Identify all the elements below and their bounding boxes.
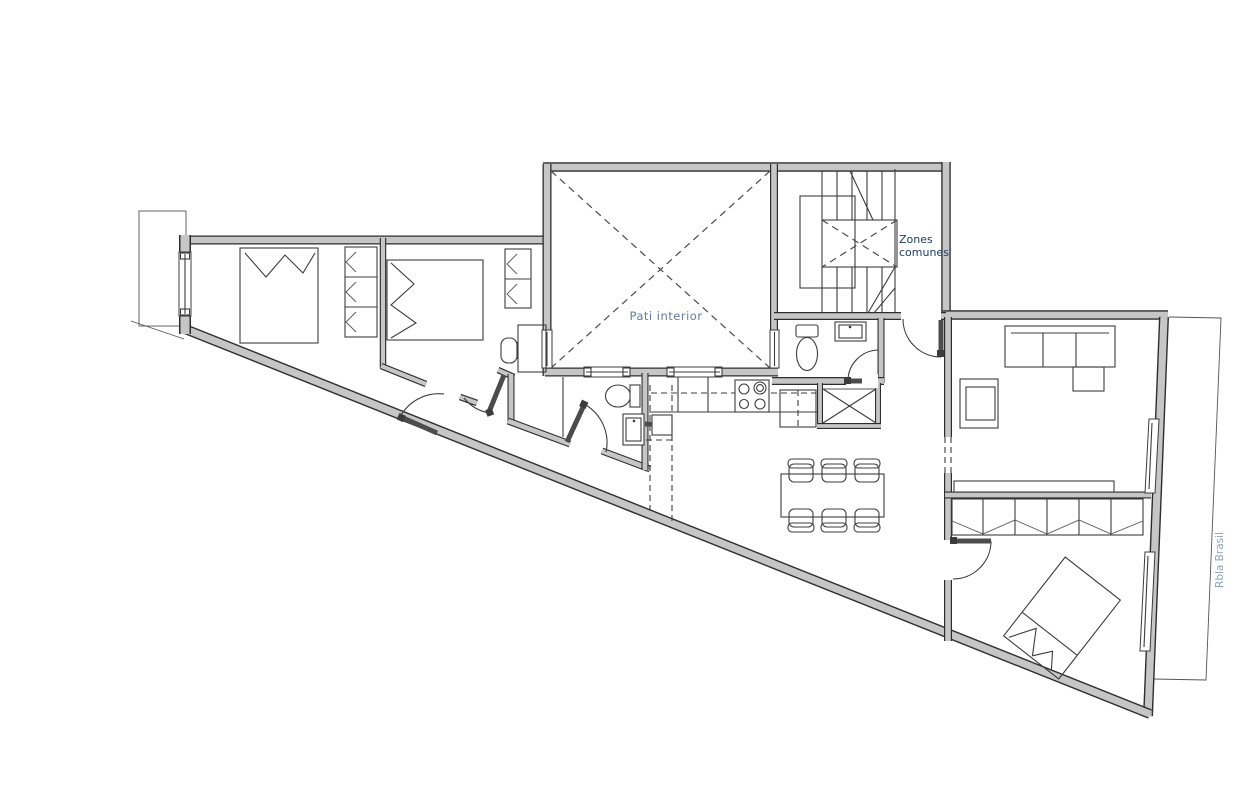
wall-openings [846,309,954,580]
wardrobe [952,499,1143,535]
floor-plan-drawing: Pati interior Zones comunes [0,0,1243,788]
bed-pillows [245,253,315,277]
door-bedroom-2 [464,375,504,417]
window [584,367,630,377]
bedroom-3 [952,499,1143,679]
street-label: Rbla Brasil [1214,532,1226,588]
sink [623,414,644,445]
door-bedroom-3 [950,537,991,579]
common-zones-label-line1: Zones [899,233,933,246]
window [770,330,779,368]
ground-line [131,321,184,339]
toilet [796,325,818,371]
window [542,330,552,368]
dining-chair [821,459,847,482]
shelf [954,481,1114,492]
tv-unit [960,379,998,428]
entrance-door [903,319,944,357]
patio-label: Pati interior [629,309,702,323]
dining-table [781,474,884,517]
kitchen [645,377,817,521]
window [179,252,191,316]
desk-chair [501,338,517,363]
patio: Pati interior [551,171,770,368]
toilet [606,385,641,407]
bedroom-2 [387,249,546,372]
staircase: Zones comunes [800,169,949,313]
dining-chair [854,509,880,532]
walls [181,162,1168,716]
bathroom-1 [796,322,866,371]
closet [345,247,377,337]
living-room [954,326,1115,492]
dining-chair [788,509,814,532]
dining-chair [788,459,814,482]
stove [735,380,769,412]
sofa [1005,326,1115,391]
closet [505,249,531,308]
bathroom-2 [563,377,644,445]
vent-shaft [823,389,876,423]
dining-area [781,459,884,532]
bedroom-1 [240,247,377,343]
floor-plan-page: Pati interior Zones comunes [0,0,1243,788]
door-bathroom-2 [567,400,607,452]
window [667,367,722,377]
common-zones-label-line2: comunes [899,246,949,259]
dining-chair [821,509,847,532]
laundry [780,390,816,427]
dining-chair [854,459,880,482]
site-outline [131,211,1221,680]
water-heater [645,415,672,435]
bed-pillows [391,263,416,338]
sink [835,322,866,341]
